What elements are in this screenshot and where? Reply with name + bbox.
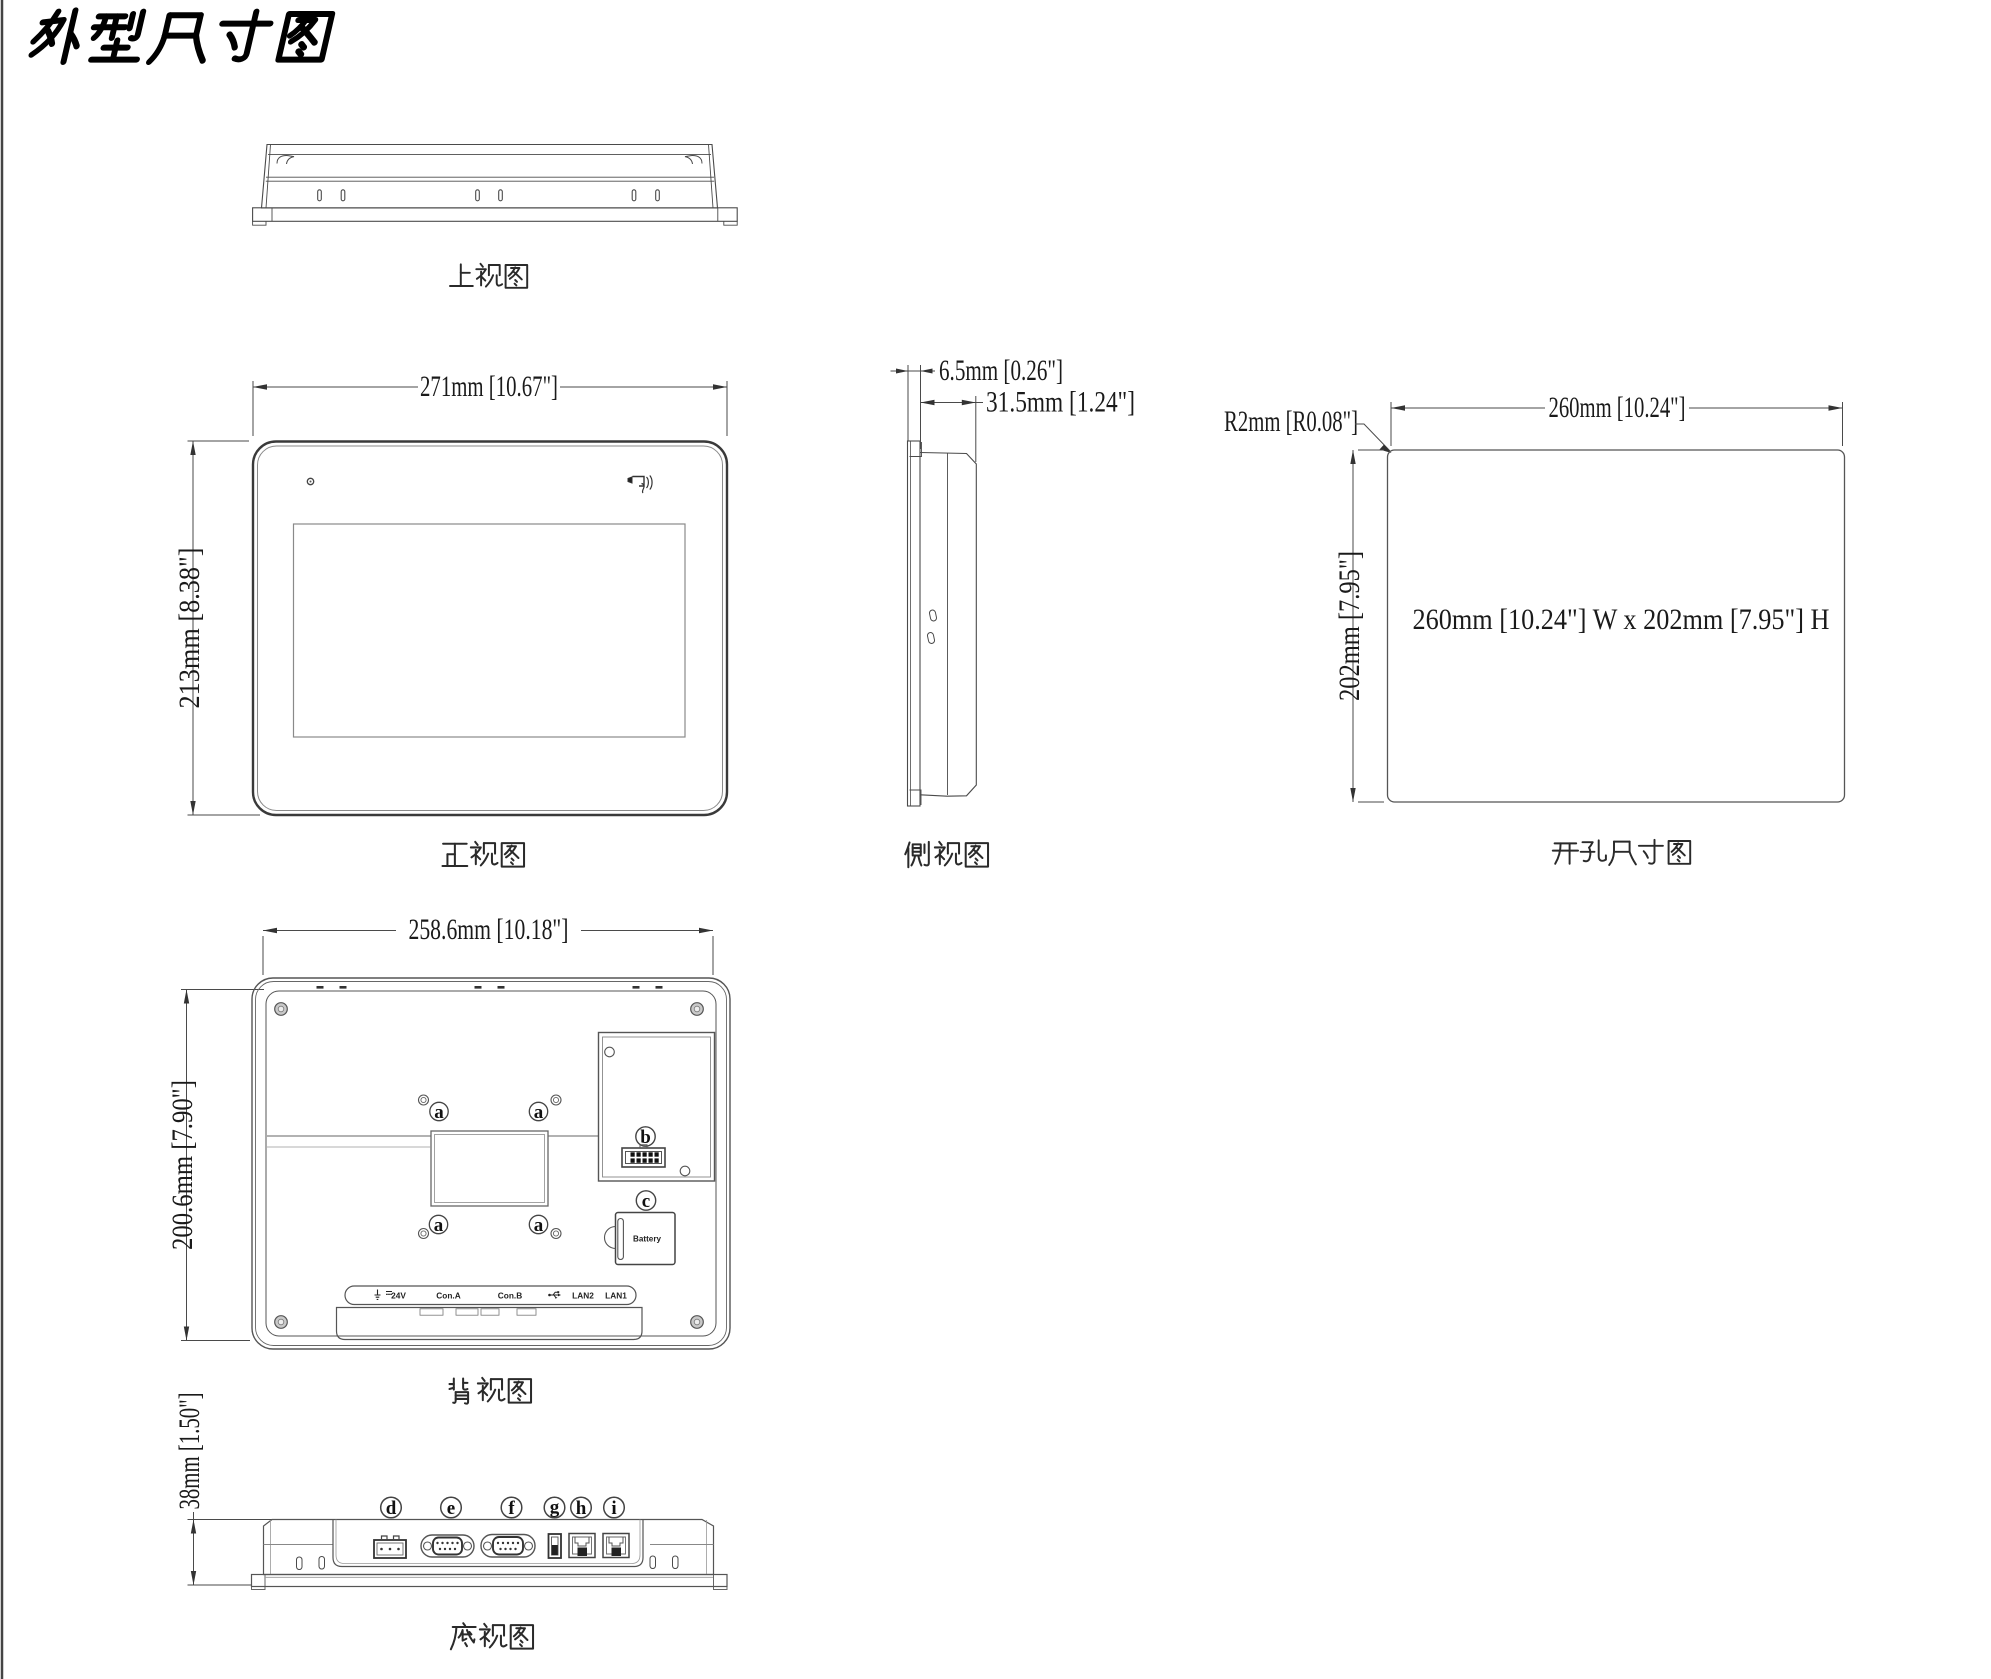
svg-text:200.6mm [7.90"]: 200.6mm [7.90"] xyxy=(166,1080,199,1250)
svg-text:260mm [10.24"] W x 202mm [7.95: 260mm [10.24"] W x 202mm [7.95"] H xyxy=(1413,603,1830,636)
svg-text:24V: 24V xyxy=(391,1291,406,1301)
svg-text:f: f xyxy=(508,1498,515,1519)
svg-text:LAN2: LAN2 xyxy=(572,1291,594,1301)
svg-text:271mm [10.67"]: 271mm [10.67"] xyxy=(420,370,558,403)
svg-text:38mm [1.50"]: 38mm [1.50"] xyxy=(173,1393,206,1510)
svg-text:h: h xyxy=(576,1498,587,1519)
svg-text:g: g xyxy=(550,1497,560,1518)
svg-text:c: c xyxy=(642,1191,650,1212)
svg-text:i: i xyxy=(611,1498,616,1519)
svg-text:e: e xyxy=(447,1498,455,1519)
svg-text:258.6mm [10.18"]: 258.6mm [10.18"] xyxy=(409,913,569,946)
svg-text:Con.A: Con.A xyxy=(436,1291,460,1301)
svg-text:Battery: Battery xyxy=(633,1234,661,1244)
svg-text:31.5mm [1.24"]: 31.5mm [1.24"] xyxy=(986,386,1135,419)
svg-text:202mm [7.95"]: 202mm [7.95"] xyxy=(1333,551,1366,701)
svg-text:R2mm [R0.08"]: R2mm [R0.08"] xyxy=(1224,405,1358,438)
svg-text:a: a xyxy=(434,1102,444,1123)
svg-text:LAN1: LAN1 xyxy=(605,1291,627,1301)
svg-text:6.5mm [0.26"]: 6.5mm [0.26"] xyxy=(939,354,1063,387)
svg-text:260mm [10.24"]: 260mm [10.24"] xyxy=(1549,391,1686,424)
svg-text:Con.B: Con.B xyxy=(498,1291,522,1301)
svg-text:213mm [8.38"]: 213mm [8.38"] xyxy=(173,548,206,709)
svg-text:d: d xyxy=(386,1498,397,1519)
